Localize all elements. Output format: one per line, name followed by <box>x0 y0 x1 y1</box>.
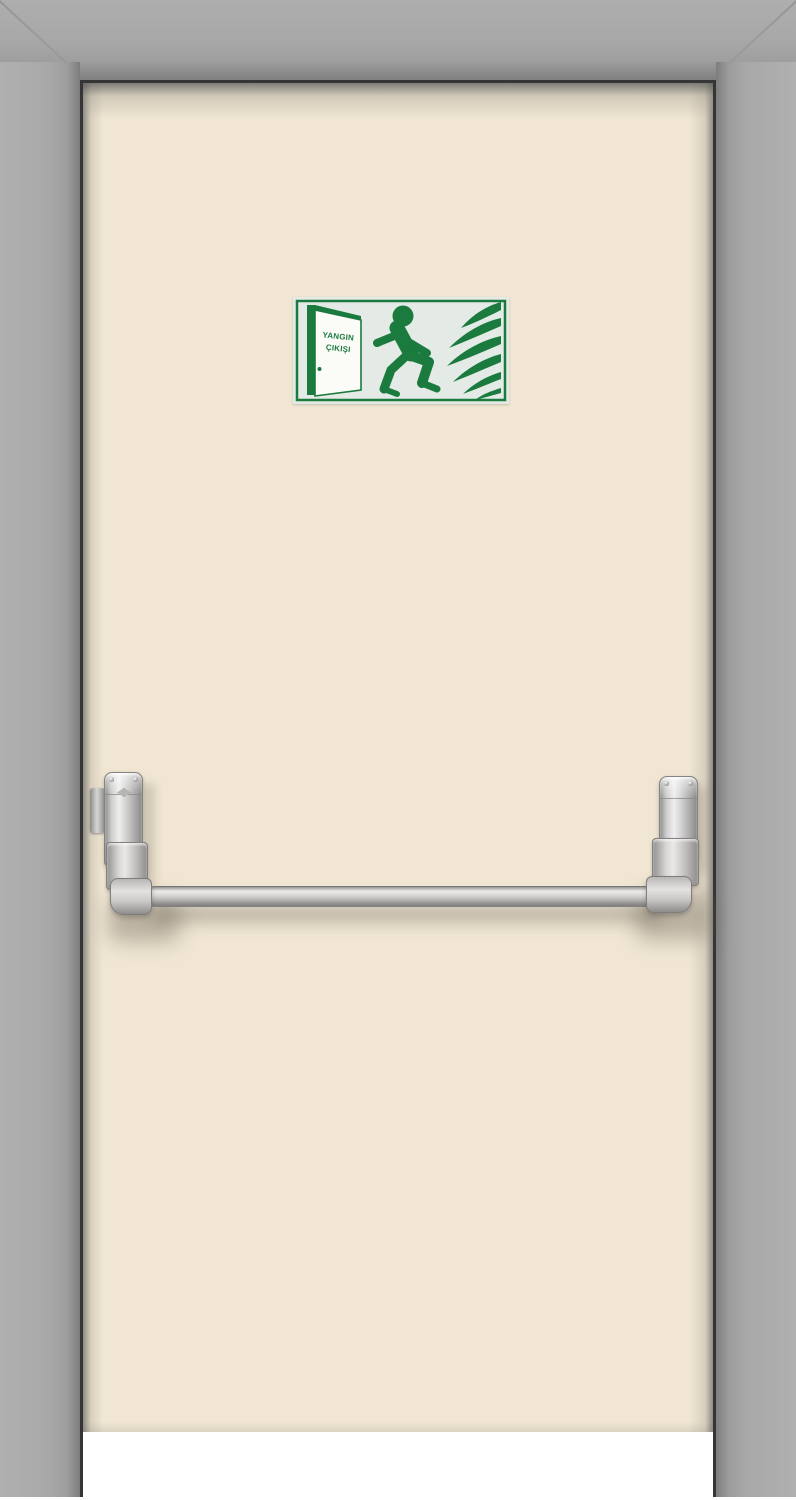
frame-gap-right <box>713 80 716 1497</box>
screw-icon <box>664 781 669 786</box>
panic-push-bar <box>146 886 656 907</box>
flames-icon <box>447 302 501 400</box>
strike-plate <box>90 788 105 833</box>
running-man-icon <box>377 306 437 395</box>
door-frame-left-jamb <box>0 0 67 1497</box>
panic-bar-left-elbow <box>110 878 152 915</box>
screw-icon <box>133 777 138 782</box>
open-door-icon: YANGIN ÇIKIŞI <box>307 305 361 396</box>
door-frame-head <box>0 0 796 62</box>
panic-bar-right-elbow <box>646 876 692 913</box>
fire-exit-sign-graphic: YANGIN ÇIKIŞI <box>293 297 509 404</box>
fire-exit-door-image: YANGIN ÇIKIŞI <box>0 0 796 1500</box>
screw-icon <box>109 777 114 782</box>
frame-reveal-right <box>716 62 729 1497</box>
door-frame-right-jamb <box>729 0 796 1497</box>
fire-exit-sign: YANGIN ÇIKIŞI <box>293 297 509 404</box>
frame-reveal-top <box>67 62 729 80</box>
frame-reveal-left <box>67 62 80 1497</box>
screw-icon <box>688 781 693 786</box>
door-handle-dot-icon <box>318 367 322 371</box>
door-leaf <box>83 83 713 1432</box>
